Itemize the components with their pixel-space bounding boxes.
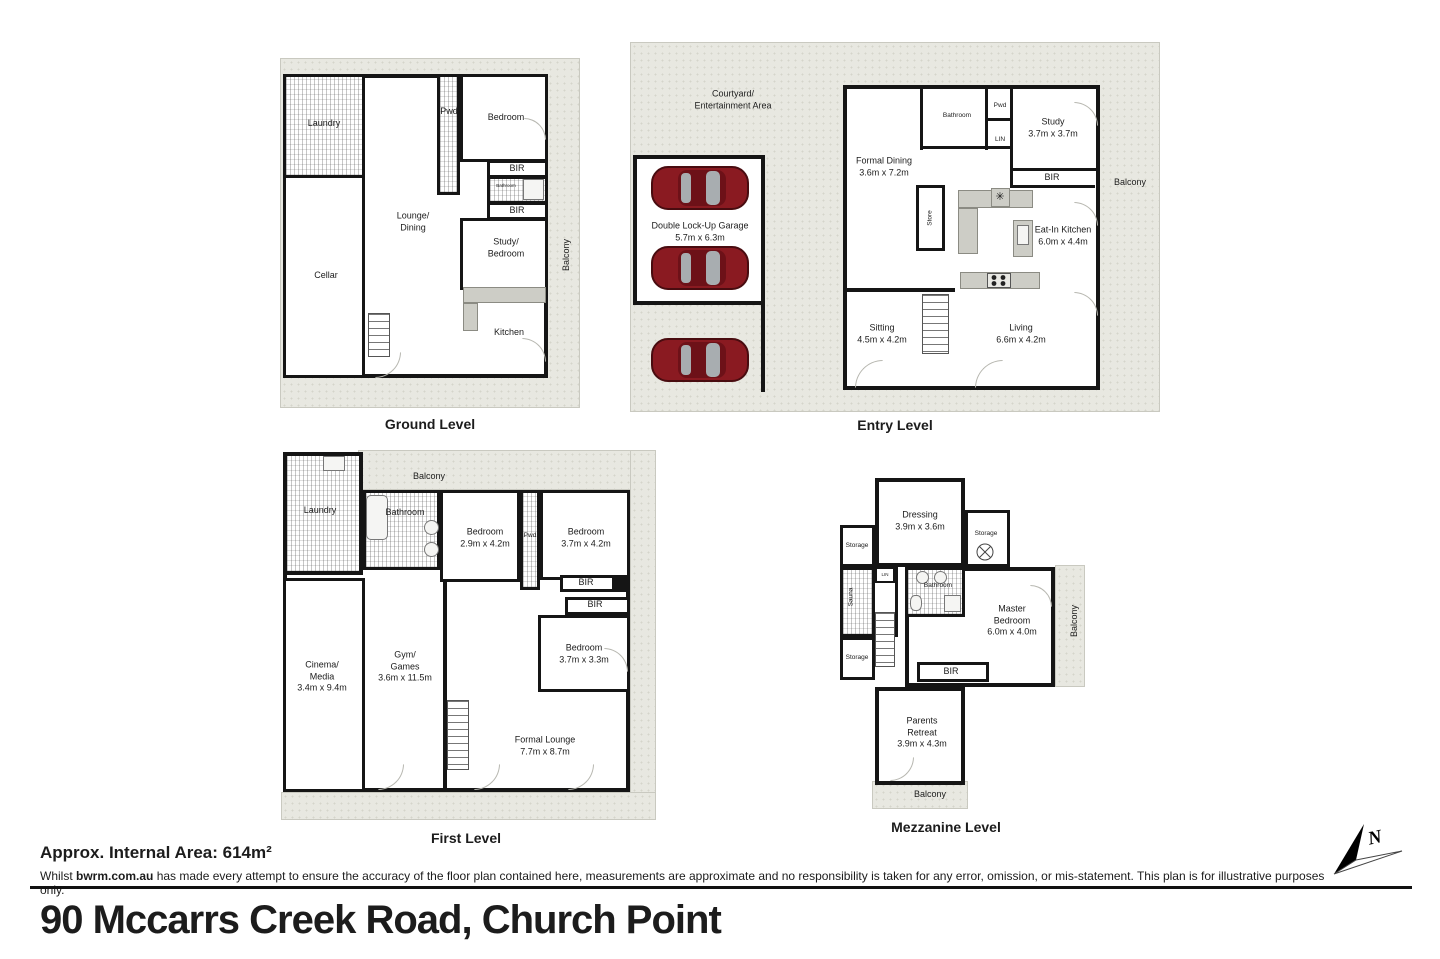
label-bedroom: Bedroom bbox=[488, 112, 525, 124]
divider-rule bbox=[30, 886, 1412, 889]
label-store: Store bbox=[927, 210, 934, 226]
label-cinema: Cinema/ Media 3.4m x 9.4m bbox=[297, 659, 347, 694]
label-balcony: Balcony bbox=[1114, 177, 1146, 189]
label-study: Study 3.7m x 3.7m bbox=[1028, 116, 1078, 139]
car-icon bbox=[650, 242, 750, 294]
label-lin: LIN bbox=[881, 572, 888, 578]
label-living: Living 6.6m x 4.2m bbox=[996, 322, 1046, 345]
north-label: N bbox=[1365, 826, 1385, 850]
label-bir-bottom: BIR bbox=[509, 205, 524, 217]
label-bir1: BIR bbox=[578, 577, 593, 589]
stairs bbox=[447, 700, 469, 770]
label-balcony-right: Balcony bbox=[1069, 605, 1079, 637]
label-study-bedroom: Study/ Bedroom bbox=[488, 236, 525, 259]
stairs bbox=[368, 313, 390, 357]
label-garage: Double Lock-Up Garage 5.7m x 6.3m bbox=[651, 220, 748, 243]
page-title: 90 Mccarrs Creek Road, Church Point bbox=[40, 898, 721, 943]
label-bir: BIR bbox=[1044, 172, 1059, 184]
shower-icon bbox=[523, 179, 544, 200]
room-ground-pwd bbox=[437, 74, 460, 195]
wall bbox=[985, 118, 1013, 121]
cooktop-icon bbox=[987, 273, 1011, 288]
caption-mezzanine-level: Mezzanine Level bbox=[891, 819, 1001, 835]
label-bedroom1: Bedroom 2.9m x 4.2m bbox=[460, 526, 510, 549]
label-appliance-symbol: ✳ bbox=[995, 190, 1004, 204]
fan-icon bbox=[976, 543, 994, 561]
label-lin: LIN bbox=[995, 136, 1005, 144]
wall bbox=[1010, 85, 1013, 188]
label-storage2: Storage bbox=[975, 530, 998, 538]
label-storage1: Storage bbox=[846, 542, 869, 550]
laundry-sink-icon bbox=[323, 456, 345, 471]
basin-icon bbox=[424, 520, 439, 535]
label-bathroom: Bathroom bbox=[385, 507, 424, 519]
label-dressing: Dressing 3.9m x 3.6m bbox=[895, 509, 945, 532]
label-bathroom: Bathroom bbox=[496, 183, 516, 189]
wall bbox=[920, 146, 1013, 149]
disclaimer-brand: bwrm.com.au bbox=[76, 869, 153, 883]
label-laundry: Laundry bbox=[304, 505, 337, 517]
stairs bbox=[875, 612, 895, 667]
label-balcony: Balcony bbox=[413, 471, 445, 483]
wall bbox=[761, 305, 765, 392]
label-formal-dining: Formal Dining 3.6m x 7.2m bbox=[856, 155, 912, 178]
toilet-icon bbox=[910, 595, 922, 611]
label-courtyard: Courtyard/ Entertainment Area bbox=[694, 88, 771, 111]
label-balcony: Balcony bbox=[561, 239, 571, 271]
label-bathroom: Bathroom bbox=[943, 112, 971, 120]
label-bir2: BIR bbox=[587, 599, 602, 611]
label-laundry: Laundry bbox=[308, 118, 341, 130]
label-bir-top: BIR bbox=[509, 163, 524, 175]
north-arrow-icon: N bbox=[1322, 818, 1412, 880]
label-pwd: Pwd bbox=[524, 532, 537, 540]
wall bbox=[615, 575, 630, 592]
label-gym: Gym/ Games 3.6m x 11.5m bbox=[378, 649, 432, 684]
disclaimer-text: Whilst bwrm.com.au has made every attemp… bbox=[40, 869, 1340, 897]
stairs bbox=[922, 294, 949, 354]
label-kitchen: Kitchen bbox=[494, 327, 524, 339]
label-bir: BIR bbox=[943, 666, 958, 678]
caption-first-level: First Level bbox=[431, 830, 501, 846]
label-pwd: Pwd bbox=[994, 102, 1007, 110]
label-storage3: Storage bbox=[846, 654, 869, 662]
car-icon bbox=[650, 162, 750, 214]
wall bbox=[920, 85, 923, 150]
room-mezz-sauna bbox=[840, 567, 875, 637]
wall bbox=[843, 288, 955, 292]
wall bbox=[1010, 168, 1100, 171]
label-lounge-dining: Lounge/ Dining bbox=[397, 210, 430, 233]
mezzanine-level-plan: Dressing 3.9m x 3.6m Storage Storage Sau… bbox=[838, 475, 1090, 835]
basin-icon bbox=[424, 542, 439, 557]
sink-icon bbox=[1017, 225, 1029, 245]
entry-level-plan: ✳ Courtyard/ Entertainment Area Double L… bbox=[630, 42, 1160, 422]
label-parents: Parents Retreat 3.9m x 4.3m bbox=[897, 715, 947, 750]
label-eat-in-kitchen: Eat-In Kitchen 6.0m x 4.4m bbox=[1035, 224, 1092, 247]
label-bedroom2: Bedroom 3.7m x 4.2m bbox=[561, 526, 611, 549]
label-master: Master Bedroom 6.0m x 4.0m bbox=[987, 603, 1037, 638]
ground-level-plan: Laundry Cellar Lounge/ Dining Pwd Bedroo… bbox=[280, 58, 580, 410]
first-deck-bottom bbox=[281, 792, 656, 820]
internal-area-label: Approx. Internal Area: 614m² bbox=[40, 843, 272, 863]
caption-ground-level: Ground Level bbox=[385, 416, 475, 432]
kitchen-counter bbox=[463, 303, 478, 331]
shower-icon bbox=[944, 595, 961, 612]
kitchen-counter bbox=[958, 208, 978, 254]
caption-entry-level: Entry Level bbox=[857, 417, 932, 433]
car-icon bbox=[650, 334, 750, 386]
label-sitting: Sitting 4.5m x 4.2m bbox=[857, 322, 907, 345]
kitchen-counter bbox=[463, 287, 546, 303]
disclaimer-rest: has made every attempt to ensure the acc… bbox=[40, 869, 1324, 897]
disclaimer-prefix: Whilst bbox=[40, 869, 76, 883]
label-bedroom3: Bedroom 3.7m x 3.3m bbox=[559, 642, 609, 665]
label-bathroom: Bathroom bbox=[924, 582, 952, 590]
wall bbox=[895, 567, 898, 637]
label-cellar: Cellar bbox=[314, 270, 338, 282]
first-level-plan: Laundry Balcony Bathroom Bedroom 2.9m x … bbox=[278, 448, 658, 848]
first-balcony-deck bbox=[358, 450, 656, 490]
floorplan-sheet: Laundry Cellar Lounge/ Dining Pwd Bedroo… bbox=[0, 0, 1440, 959]
label-pwd: Pwd bbox=[440, 106, 458, 118]
label-formal-lounge: Formal Lounge 7.7m x 8.7m bbox=[515, 734, 576, 757]
wall bbox=[1010, 185, 1095, 188]
first-deck-right bbox=[630, 450, 656, 820]
label-balcony-bottom: Balcony bbox=[914, 789, 946, 801]
label-sauna: Sauna bbox=[848, 588, 855, 607]
